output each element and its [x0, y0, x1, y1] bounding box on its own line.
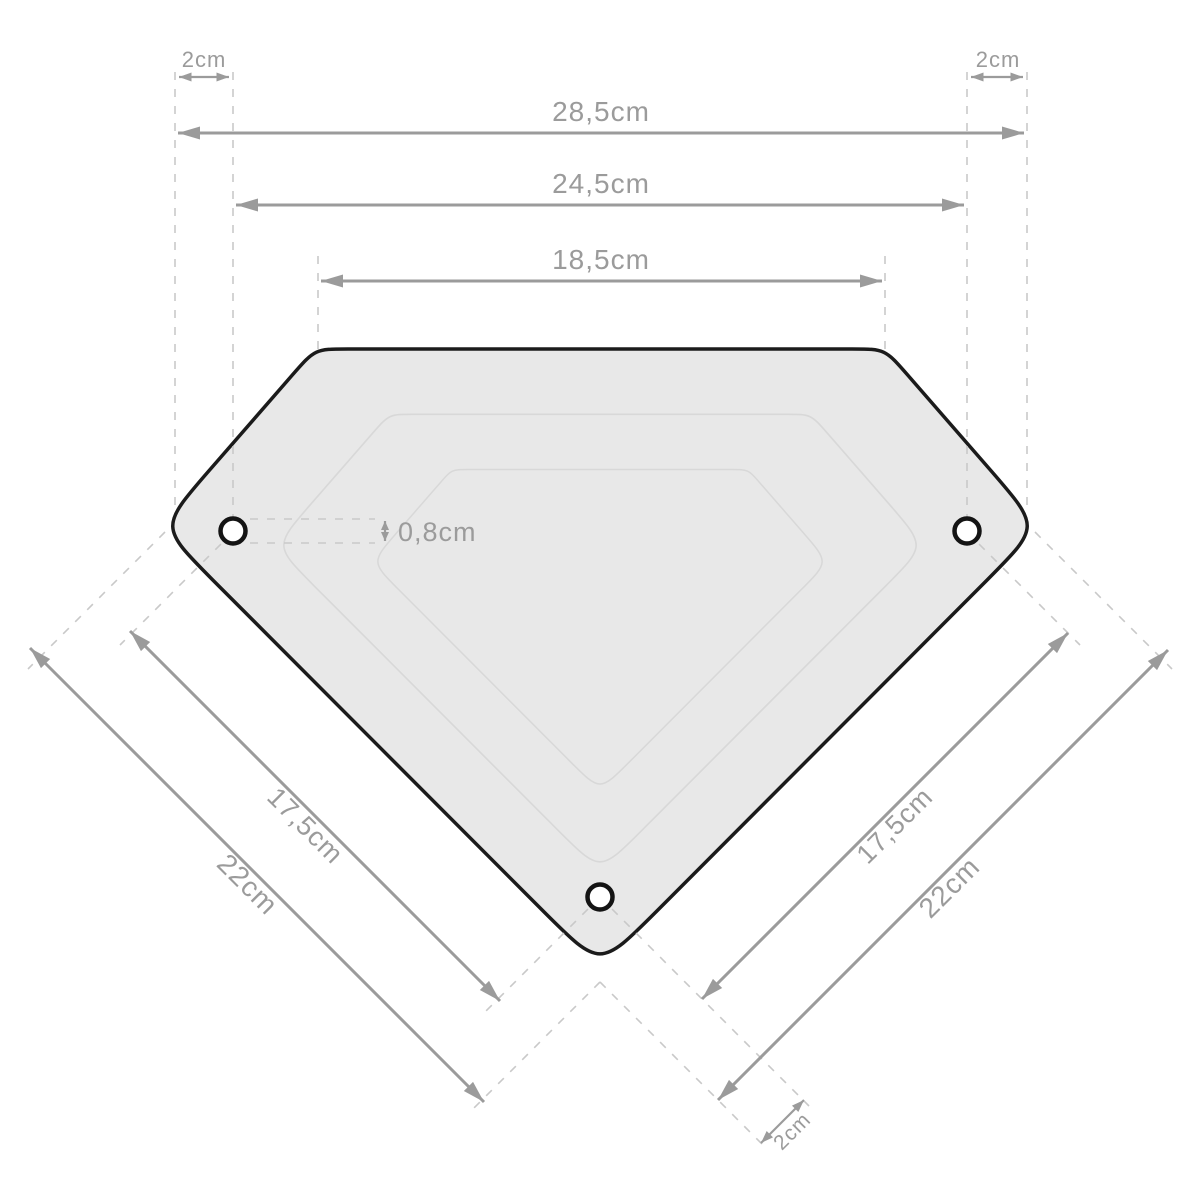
ext-diag-bottom-tip-left [470, 982, 600, 1112]
dim-label-left-hole-span: 17,5cm [261, 782, 349, 870]
hole-left [221, 519, 246, 544]
dim-label-left-edge: 22cm [211, 848, 284, 921]
ext-diag-left-tip [28, 532, 165, 669]
dimension-diagram-page: 28,5cm 24,5cm 18,5cm 2cm 2cm 0,8cm 17,5c… [0, 0, 1200, 1200]
plate-outline [173, 349, 1027, 954]
dim-label-bottom-offset: 2cm [769, 1108, 815, 1154]
dim-label-right-edge: 22cm [913, 851, 986, 924]
ext-diag-right-hole [967, 532, 1080, 645]
plate-shape [173, 349, 1027, 954]
dim-label-right-hole-span: 17,5cm [851, 782, 939, 870]
dim-label-top-edge-width: 18,5cm [552, 244, 650, 275]
dim-label-hole-diameter: 0,8cm [398, 517, 477, 547]
hole-bottom [588, 885, 613, 910]
ext-diag-bottom-tip-right [600, 982, 765, 1147]
ext-diag-left-hole [120, 532, 233, 645]
dim-label-overall-width: 28,5cm [552, 96, 650, 127]
ext-diag-bottom-hole-left [486, 897, 600, 1011]
dim-label-hole-span-width: 24,5cm [552, 168, 650, 199]
dim-label-top-offset-left: 2cm [182, 47, 227, 72]
ext-diag-right-tip [1035, 532, 1172, 669]
hole-right [955, 519, 980, 544]
dim-label-top-offset-right: 2cm [976, 47, 1021, 72]
plate-dimension-diagram: 28,5cm 24,5cm 18,5cm 2cm 2cm 0,8cm 17,5c… [0, 0, 1200, 1200]
